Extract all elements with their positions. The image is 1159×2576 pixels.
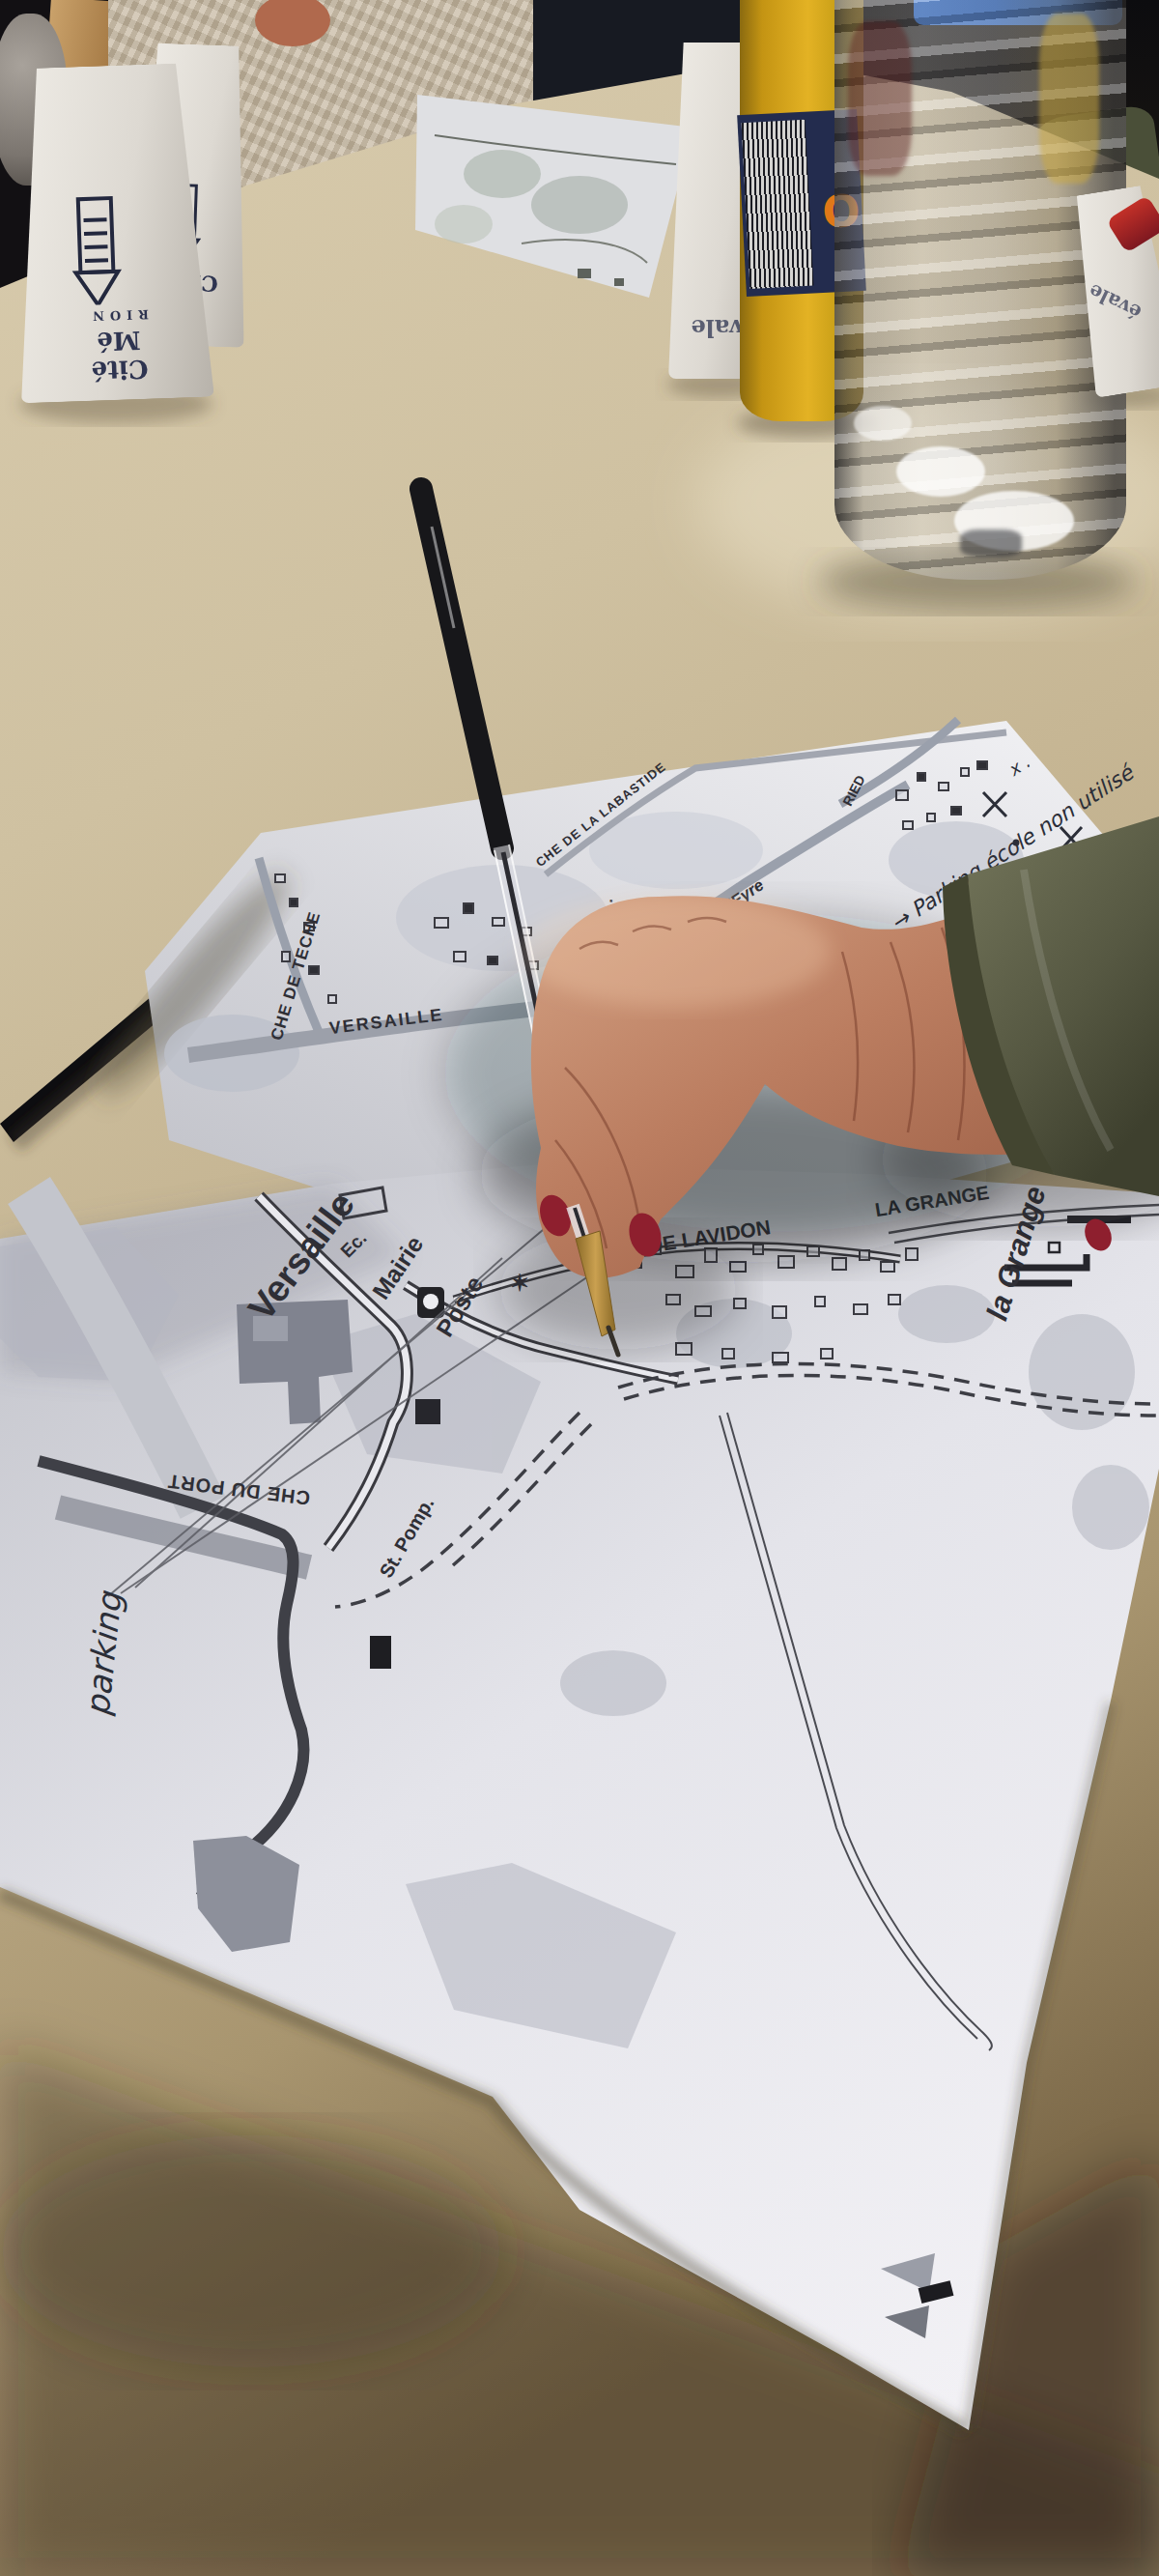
photo-scene: Cité Cité Mé RION évale O bbox=[0, 0, 1159, 2576]
hand-layer bbox=[0, 0, 1159, 2576]
pen-cap bbox=[421, 489, 502, 848]
